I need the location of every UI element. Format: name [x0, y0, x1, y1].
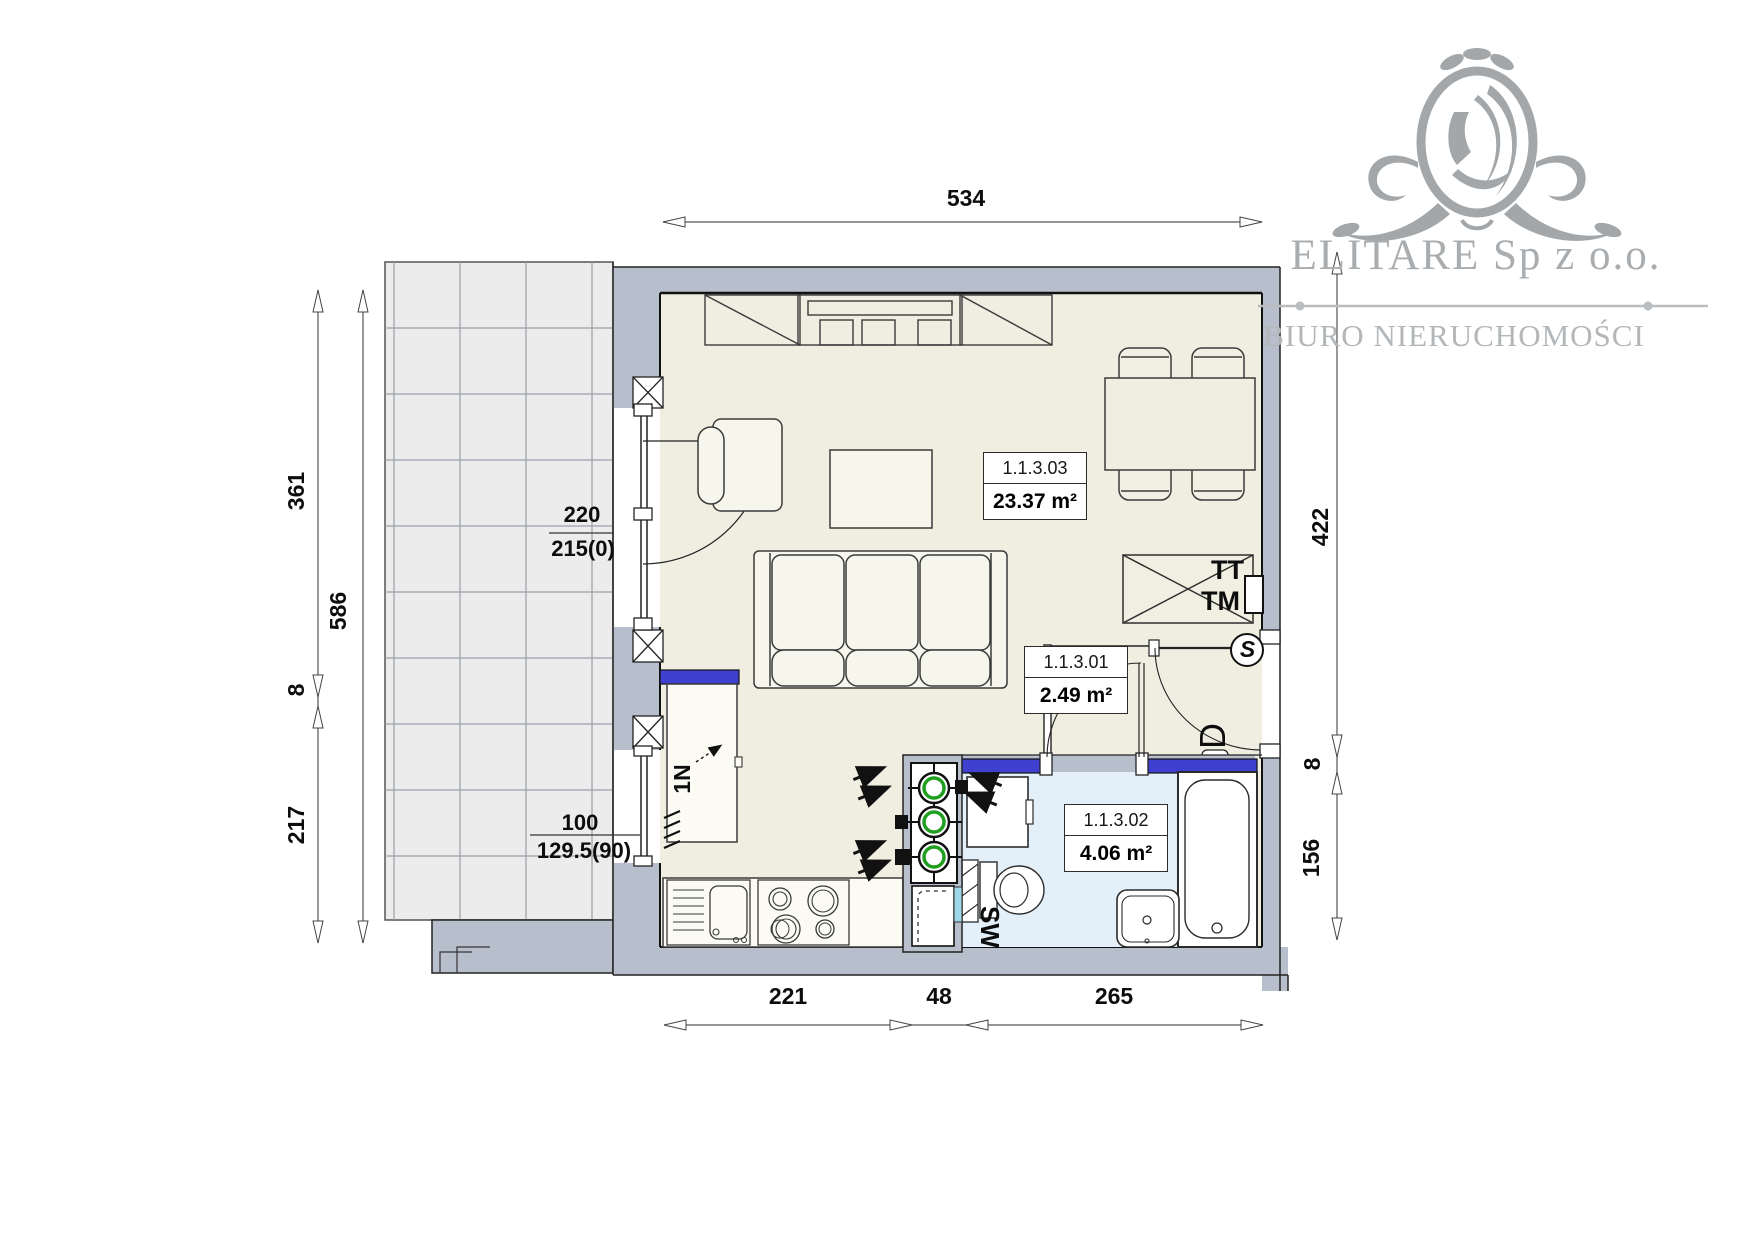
- sink-bowl: [710, 886, 747, 939]
- marker-switch: S: [1237, 636, 1258, 664]
- washbasin: [1117, 890, 1179, 947]
- sofa: [754, 551, 1007, 688]
- floor-plan-drawing: [0, 0, 1752, 1234]
- dim-top-width: 534: [930, 185, 1002, 212]
- kitchen-lintel: [660, 670, 739, 684]
- room-area-living: 23.37 m²: [984, 484, 1086, 519]
- logo-company-name: ELITARE Sp z o.o.: [1220, 231, 1732, 280]
- room-number-hall: 1.1.3.01: [1025, 647, 1127, 678]
- armchair: [698, 419, 782, 511]
- logo-lion-emblem: [1331, 48, 1623, 241]
- meter-box: [1245, 576, 1263, 613]
- logo-tagline: BIURO NIERUCHOMOŚCI: [1198, 318, 1710, 354]
- room-number-bathroom: 1.1.3.02: [1065, 805, 1167, 836]
- marker-tt: TT: [1200, 555, 1244, 586]
- room-label-bathroom: 1.1.3.02 4.06 m²: [1064, 804, 1168, 872]
- stove: [758, 880, 849, 945]
- dim-bottom-bathroom: 265: [1084, 983, 1144, 1010]
- room-number-living: 1.1.3.03: [984, 453, 1086, 484]
- logo-divider: [1258, 302, 1708, 311]
- dim-right-gap: 8: [1262, 714, 1362, 814]
- room-area-hall: 2.49 m²: [1025, 678, 1127, 713]
- dim-bottom-shaft: 48: [909, 983, 969, 1010]
- marker-entry-door: D: [1178, 701, 1248, 771]
- balcony-door-sill: 215(0): [543, 536, 623, 562]
- floor-plan-page: 534 221 48 265 361 586 8 217 422 8 156 2…: [0, 0, 1752, 1234]
- washing-machine: [967, 777, 1033, 847]
- room-label-living: 1.1.3.03 23.37 m²: [983, 452, 1087, 520]
- marker-soil-stack: SW: [955, 892, 1025, 962]
- kitchen-counter: [663, 878, 903, 947]
- bathtub: [1178, 772, 1257, 947]
- balcony: [385, 262, 613, 973]
- room-label-hall: 1.1.3.01 2.49 m²: [1024, 646, 1128, 714]
- coffee-table: [830, 450, 932, 528]
- room-area-bathroom: 4.06 m²: [1065, 836, 1167, 871]
- kitchen-window-sill: 129.5(90): [531, 838, 637, 864]
- marker-tm: TM: [1196, 586, 1240, 617]
- dim-left-lower: 217: [246, 775, 346, 875]
- dining-table: [1105, 378, 1255, 470]
- dim-right-lower: 156: [1261, 808, 1361, 908]
- dim-left-upper: 361: [246, 441, 346, 541]
- dim-right-upper: 422: [1270, 477, 1370, 577]
- dim-bottom-kitchen: 221: [758, 983, 818, 1010]
- balcony-door-width: 220: [550, 502, 614, 528]
- kitchen-window-width: 100: [557, 810, 603, 836]
- dim-left-gap: 8: [246, 640, 346, 740]
- marker-vent: 1N: [647, 744, 717, 814]
